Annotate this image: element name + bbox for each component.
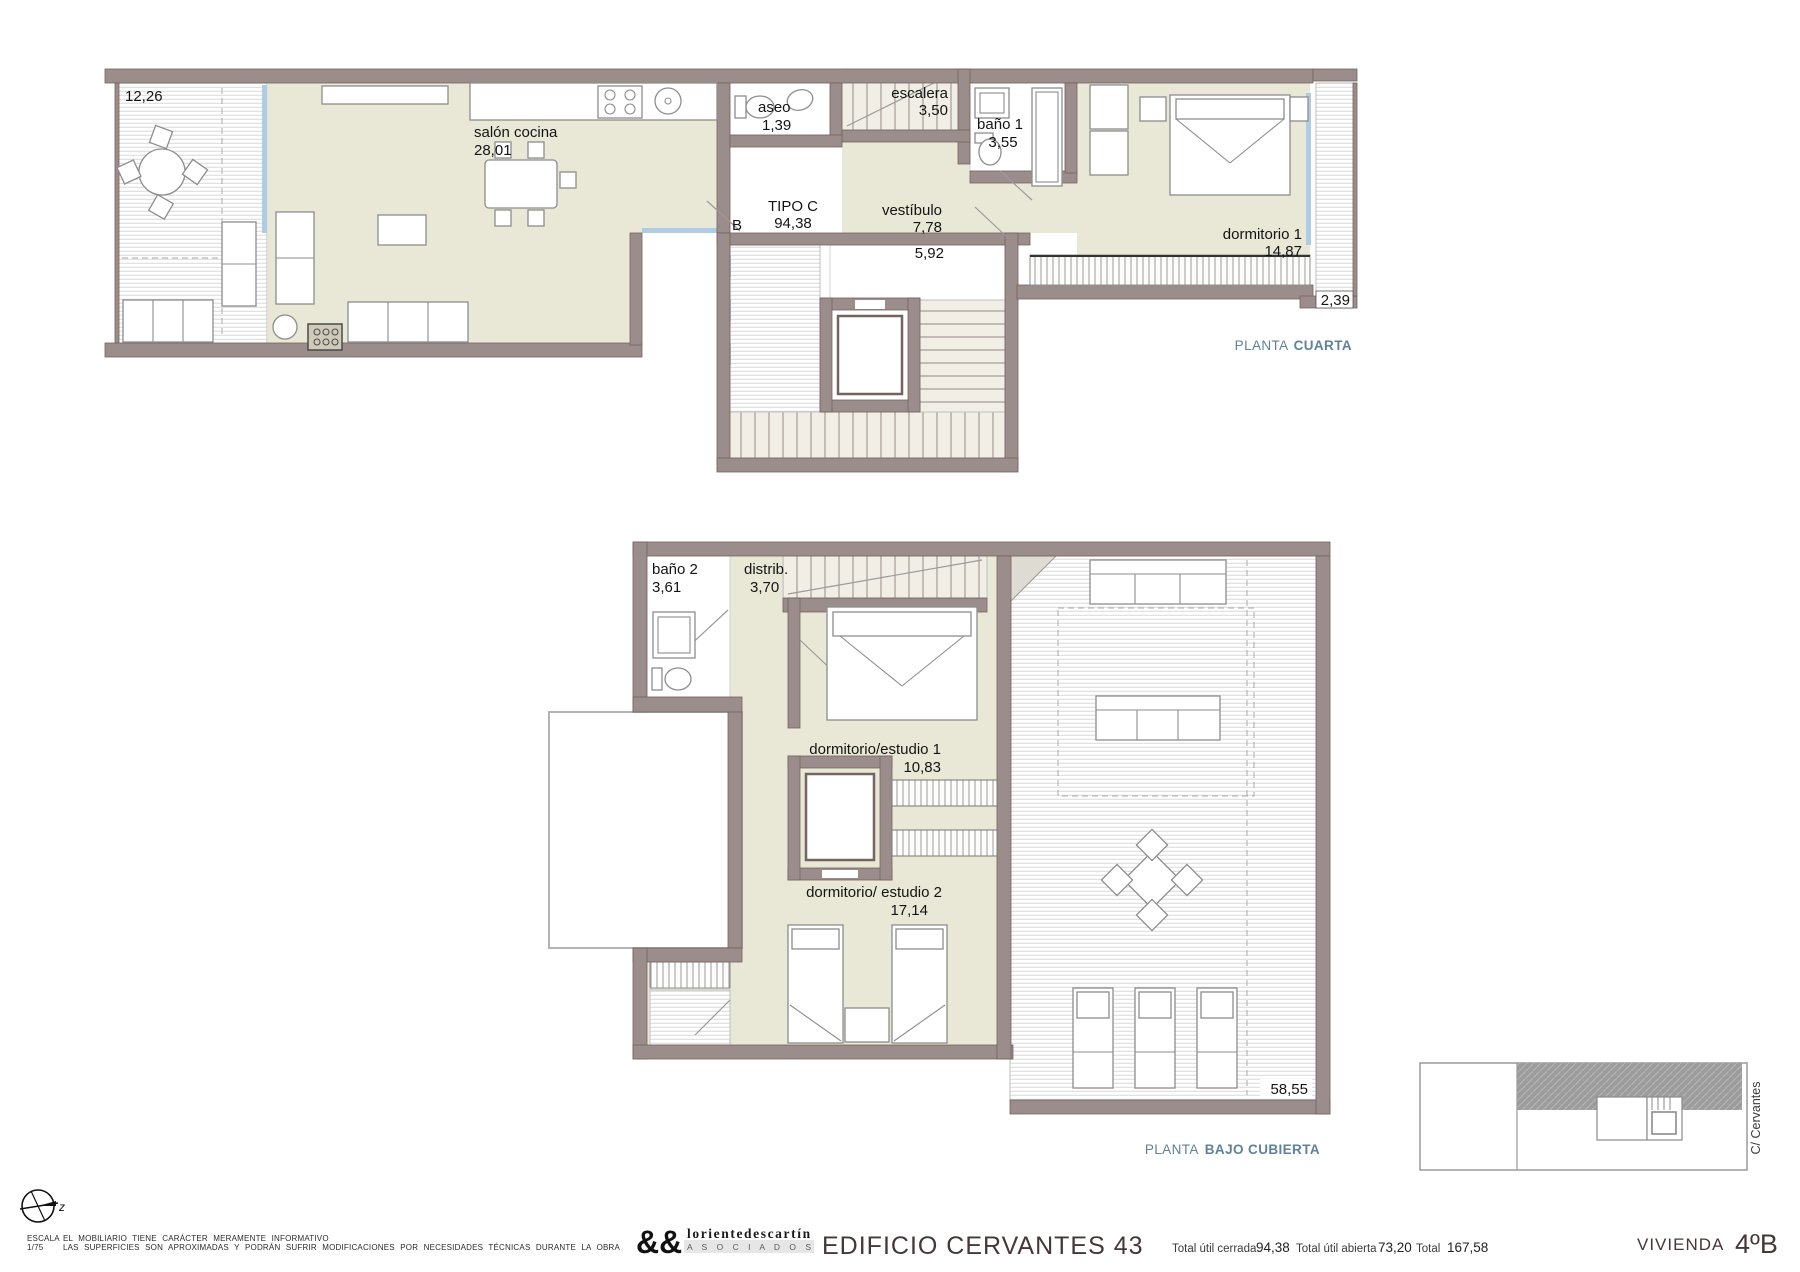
site-street-label: C/ Cervantes	[1749, 1082, 1763, 1155]
bath2-wc-icon	[652, 668, 691, 690]
bed-studio1-icon	[827, 607, 977, 720]
label-vestibulo-area: 7,78	[913, 219, 942, 236]
closet-strip-lower	[650, 962, 730, 988]
armchair-round	[273, 315, 297, 339]
total-closed-value: 94,38	[1256, 1240, 1290, 1255]
label-distrib-area: 3,70	[750, 579, 779, 596]
elevator-door-gap	[855, 300, 885, 309]
totals: Total útil cerrada 94,38 Total útil abie…	[1172, 1240, 1488, 1255]
label-terrace-right-area: 2,39	[1321, 292, 1350, 309]
twin-bed-2-icon	[892, 925, 947, 1043]
total-open-label: Total útil abierta	[1296, 1243, 1377, 1255]
wardrobe-strip-a	[892, 780, 997, 806]
window-living-south	[642, 228, 717, 233]
floorplan-drawing: 12,26 salón cocina 28,01 aseo 1,39 escal…	[0, 0, 1800, 1272]
living-sofa-long	[348, 302, 468, 342]
label-aseo-area: 1,39	[762, 117, 791, 134]
caption-name: CUARTA	[1294, 338, 1352, 353]
caption-planta-cuarta: PLANTACUARTA	[1235, 338, 1352, 353]
caption-prefix: PLANTA	[1145, 1142, 1199, 1157]
label-escalera-name: escalera	[891, 85, 948, 102]
nightstand-left	[1140, 97, 1166, 121]
scale-value: 1/75	[27, 1243, 44, 1252]
kitchen-shelf	[322, 86, 448, 104]
label-salon-name: salón cocina	[474, 124, 558, 141]
disclaimer-line2: LAS SUPERFICIES SON APROXIMADAS Y PODRÁN…	[63, 1243, 621, 1252]
scale-label: ESCALA	[27, 1234, 60, 1243]
plan-bajo-cubierta: baño 2 3,61 distrib. 3,70 dormitorio/est…	[549, 542, 1330, 1157]
site-core	[1597, 1097, 1682, 1140]
label-dorm-est1-name: dormitorio/estudio 1	[809, 741, 941, 758]
label-escalera-area: 3,50	[919, 102, 948, 119]
label-aseo-name: aseo	[758, 99, 791, 116]
logo-name: lorientedescartín	[687, 1226, 812, 1241]
beds-middle-table	[845, 1008, 889, 1042]
total-label: Total	[1416, 1243, 1440, 1255]
wardrobe-strip-b	[892, 830, 997, 856]
terrace-sofa-2	[1096, 696, 1220, 740]
label-vestibulo-name: vestíbulo	[882, 202, 942, 219]
wardrobe-column-1	[1090, 85, 1128, 129]
label-tipo-area: 94,38	[774, 215, 812, 232]
window-terrace-living	[262, 85, 267, 233]
footer: z ESCALA 1/75 EL MOBILIARIO TIENE CARÁCT…	[20, 1190, 1778, 1260]
label-dorm-est1-area: 10,83	[903, 759, 941, 776]
label-landing-area: 5,92	[915, 245, 944, 262]
elevator-door-gap-upper	[822, 870, 858, 878]
void-open-below	[549, 712, 742, 948]
label-salon-area: 28,01	[474, 142, 512, 159]
label-dormitorio1-name: dormitorio 1	[1223, 226, 1302, 243]
living-kitchen-floor	[268, 83, 717, 343]
logo-ampersands: &&	[636, 1224, 682, 1260]
label-bano1-name: baño 1	[977, 116, 1023, 133]
unit-value: 4ºB	[1735, 1229, 1778, 1259]
hob-icon	[598, 86, 642, 118]
coffee-table	[378, 215, 426, 245]
sink-icon	[655, 88, 681, 114]
label-distrib-name: distrib.	[744, 561, 788, 578]
total-open-value: 73,20	[1378, 1240, 1412, 1255]
nightstand-right	[1290, 97, 1308, 121]
caption-planta-bajo-cubierta: PLANTABAJO CUBIERTA	[1145, 1142, 1320, 1157]
project-title: EDIFICIO CERVANTES 43	[822, 1232, 1144, 1260]
north-arrow-icon: z	[20, 1190, 65, 1222]
elevator-cabin	[838, 316, 902, 394]
core-stair-bottom	[730, 412, 1005, 458]
sun-loungers	[1073, 988, 1237, 1088]
stove-icon	[308, 324, 342, 350]
caption-prefix: PLANTA	[1235, 338, 1289, 353]
north-letter: z	[58, 1200, 65, 1214]
site-key-plan: C/ Cervantes	[1420, 1063, 1763, 1170]
twin-bed-1-icon	[788, 925, 843, 1043]
caption-name: BAJO CUBIERTA	[1205, 1142, 1320, 1157]
label-dorm-est2-area: 17,14	[890, 902, 928, 919]
bed-double-icon	[1170, 95, 1290, 195]
studio-logo: && lorientedescartín A S O C I A D O S	[636, 1224, 815, 1260]
disclaimer-line1: EL MOBILIARIO TIENE CARÁCTER MERAMENTE I…	[63, 1234, 329, 1243]
plan-cuarta: 12,26 salón cocina 28,01 aseo 1,39 escal…	[105, 69, 1357, 472]
terrace-small-deck	[650, 990, 730, 1045]
label-door-letter: B	[732, 217, 742, 234]
bath1-shower-icon	[1032, 88, 1062, 186]
floorplan-sheet: 12,26 salón cocina 28,01 aseo 1,39 escal…	[0, 0, 1800, 1272]
label-roof-terrace-area: 58,55	[1270, 1081, 1308, 1098]
label-tipo-name: TIPO C	[768, 198, 818, 215]
bath2-shower-icon	[653, 612, 695, 658]
logo-subtitle: A S O C I A D O S	[687, 1242, 815, 1252]
patio-deck	[730, 245, 820, 412]
bath1-sink-icon	[975, 88, 1009, 118]
terrace-sofa-1	[1090, 560, 1226, 604]
total-value: 167,58	[1447, 1240, 1488, 1255]
label-dorm-est2-name: dormitorio/ estudio 2	[806, 884, 942, 901]
label-bano2-area: 3,61	[652, 579, 681, 596]
label-dormitorio1-area: 14,87	[1264, 243, 1302, 260]
core-stair-right	[920, 300, 1005, 412]
wardrobe-column-2	[1090, 131, 1128, 175]
label-bano2-name: baño 2	[652, 561, 698, 578]
terrace-right-deck	[1316, 83, 1356, 296]
elevator-cabin-upper	[806, 774, 874, 860]
unit-label: VIVIENDA	[1637, 1235, 1724, 1254]
total-closed-label: Total útil cerrada	[1172, 1243, 1257, 1255]
label-terrace-left-area: 12,26	[125, 88, 163, 105]
living-sofa-vertical	[276, 212, 314, 304]
label-bano1-area: 3,55	[988, 134, 1017, 151]
